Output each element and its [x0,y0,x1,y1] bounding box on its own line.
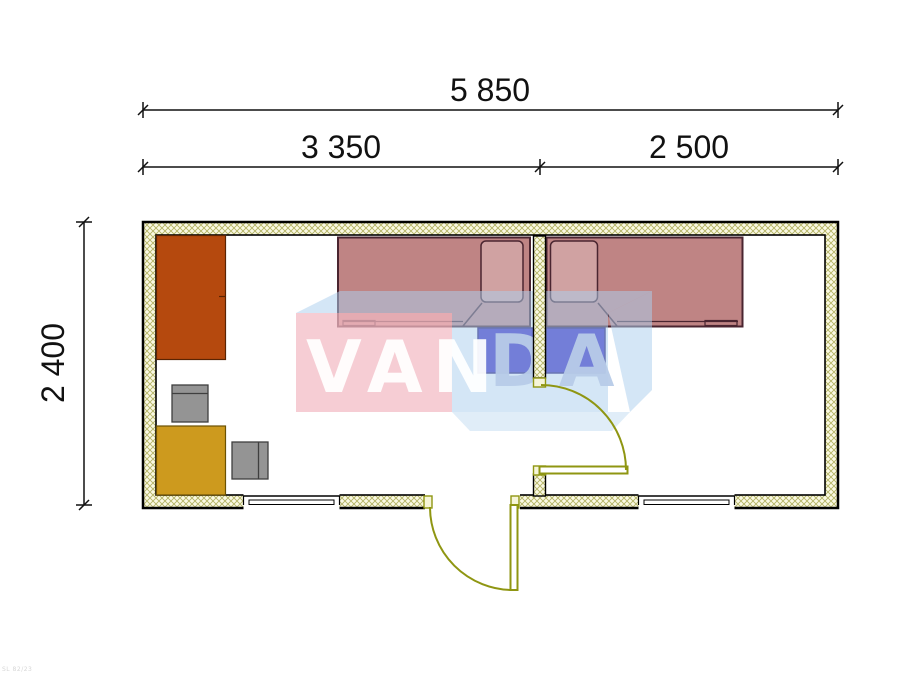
watermark-top-face [296,291,652,313]
interior-door-leaf [540,467,628,474]
entrance-door [424,494,520,591]
chair-upper [172,385,208,422]
window-left [244,494,340,510]
window-right-glass [644,500,729,505]
floor-plan-canvas: VAN DA [0,0,924,700]
watermark-text-da: DA [489,319,625,403]
window-left-glass [249,500,334,505]
watermark-text-van: VAN [306,325,503,409]
watermark: VAN DA [296,291,652,431]
table-gold [157,426,226,495]
window-right [639,494,735,510]
entrance-door-swing-arc [430,507,513,590]
partition-wall-stub [534,474,546,496]
corner-micro-text: SL 82/23 [2,666,32,673]
floor-plan-drawing: VAN DA [0,0,924,700]
entrance-door-jamb-left [424,496,432,508]
dim-label-left-section: 3 350 [301,129,381,165]
wardrobe [157,236,226,360]
entrance-door-leaf [511,505,518,590]
dim-label-right-section: 2 500 [649,129,729,165]
chair-lower [232,442,268,479]
partition-wall [534,236,546,378]
dim-label-depth: 2 400 [35,323,71,403]
dim-label-overall: 5 850 [450,72,530,108]
watermark-bottom-step [452,412,630,431]
